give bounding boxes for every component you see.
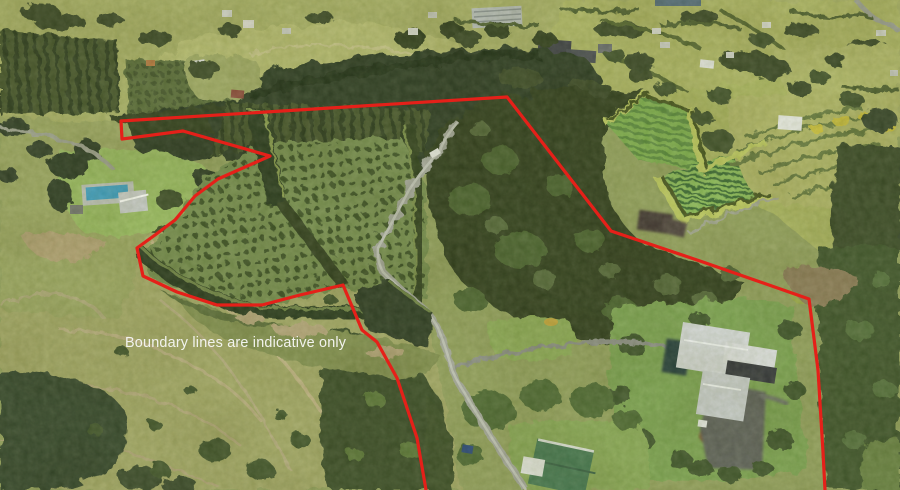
svg-text:Boundary lines are indicative: Boundary lines are indicative only <box>125 335 347 351</box>
